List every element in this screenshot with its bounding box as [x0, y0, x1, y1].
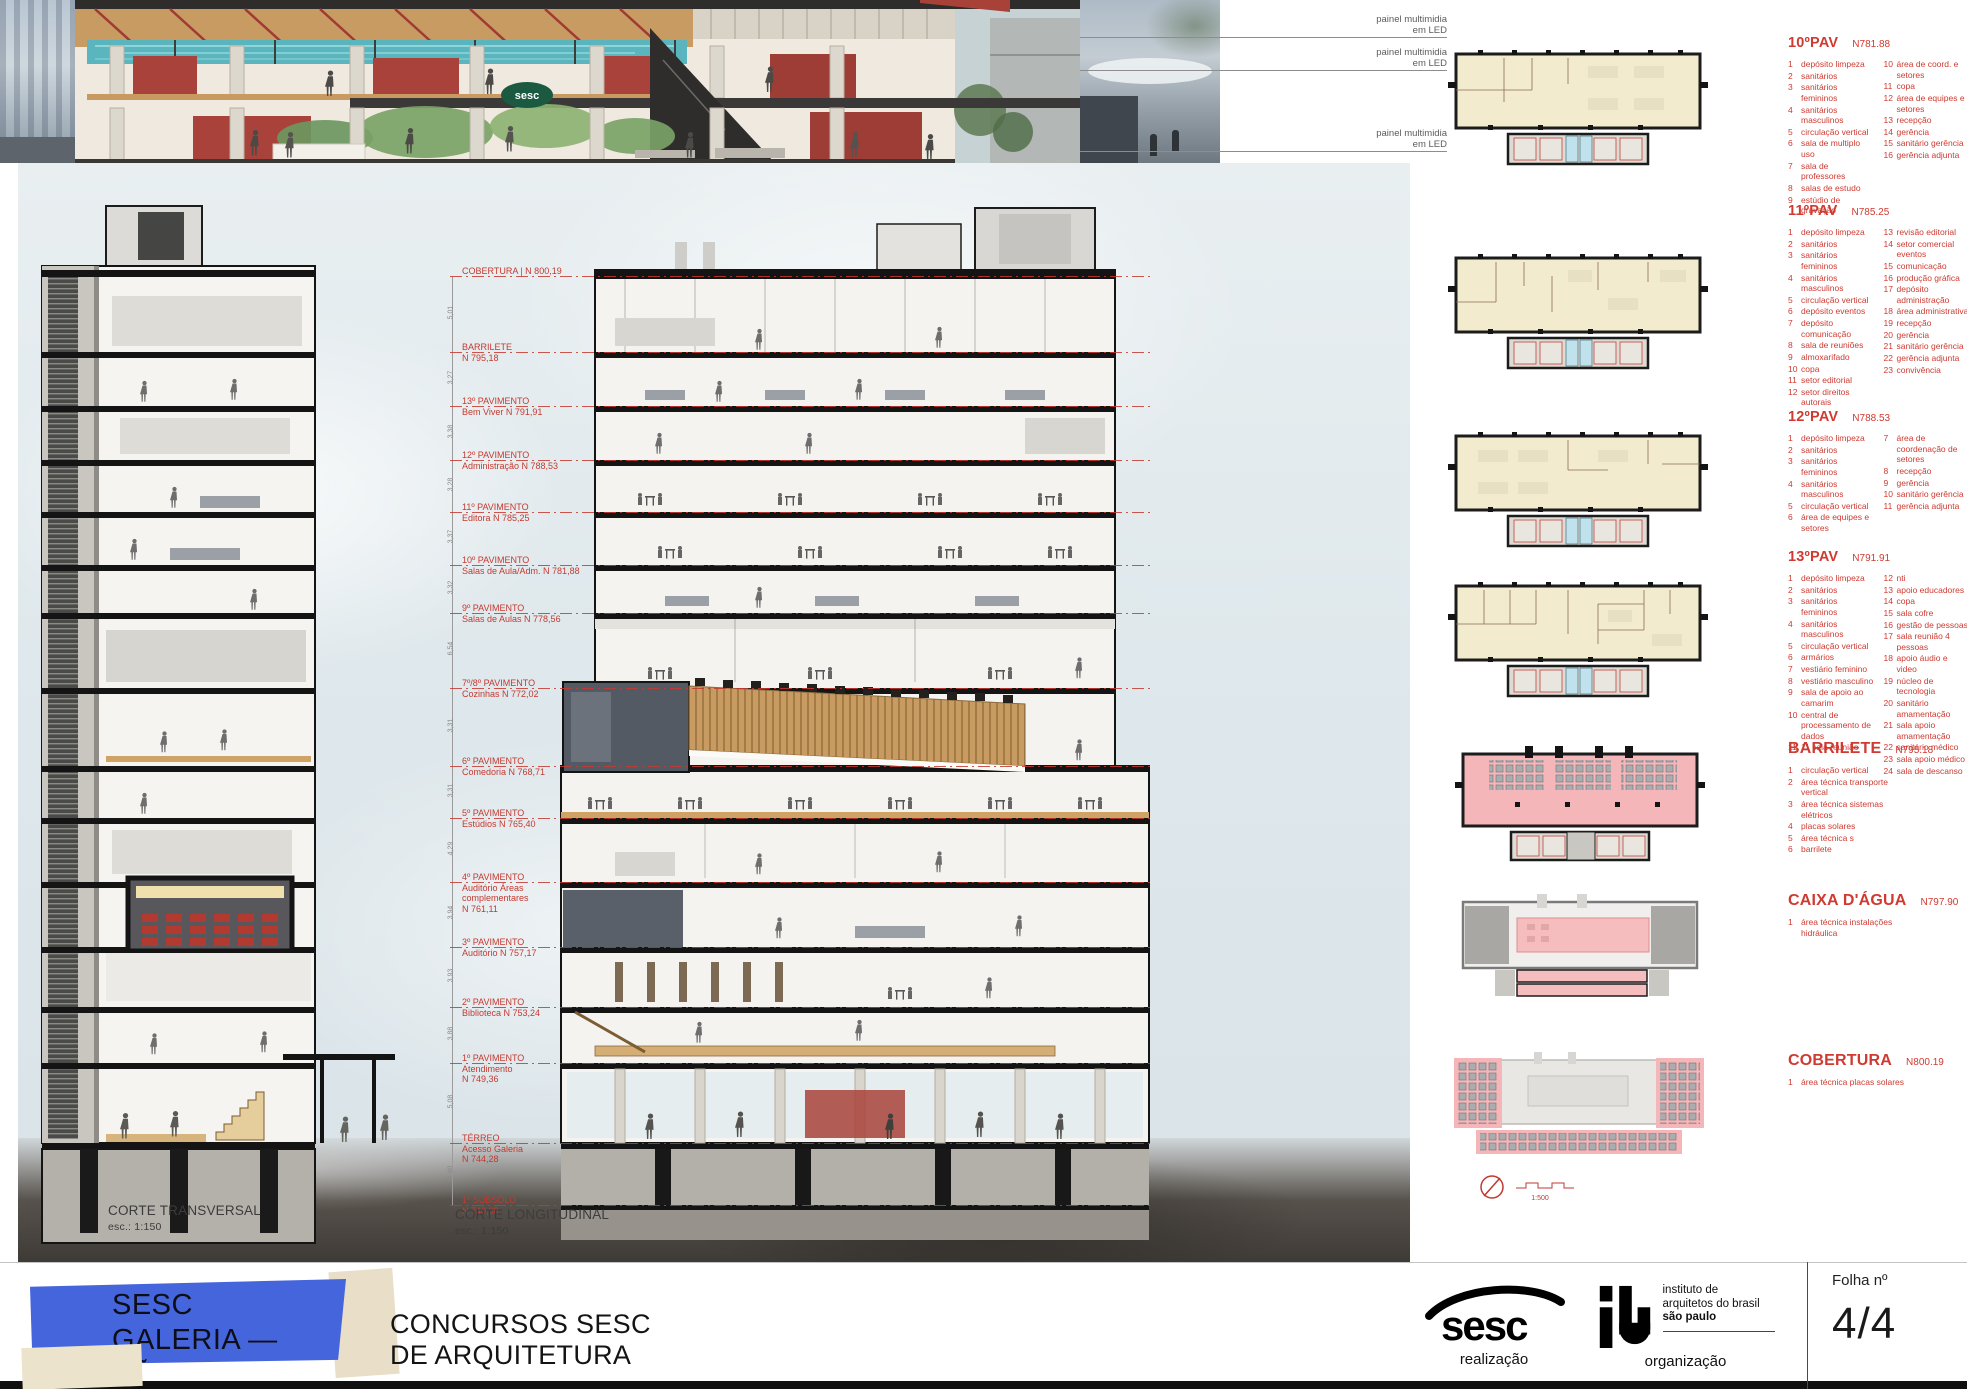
dimension-value: 4,29 — [448, 832, 455, 866]
legend-column: 10área de coord. e setores11copa12área d… — [1884, 59, 1967, 162]
legend-item: 4sanitários masculinos — [1788, 273, 1875, 294]
dimension-value: 3,32 — [448, 571, 455, 605]
bottom-bar — [0, 1381, 1967, 1389]
scale-value: 1:500 — [1531, 1195, 1549, 1202]
floor-plan-caixa-dagua — [1455, 894, 1705, 998]
legend-item: 6armários — [1788, 652, 1875, 663]
floor-plan-13pav — [1448, 574, 1708, 704]
legend-item: 8recepção — [1884, 466, 1967, 477]
legend-item: 11copa — [1884, 81, 1967, 92]
legend-item: 4placas solares — [1788, 821, 1908, 832]
legend-item: 12área de equipes e setores — [1884, 93, 1967, 114]
legend-item: 10central de processamento de dados — [1788, 710, 1875, 742]
doorway-shape — [1080, 96, 1138, 163]
legend-item: 4sanitários masculinos — [1788, 105, 1875, 126]
legend-title: 11ºPAV — [1788, 203, 1838, 219]
level-label: 13º PAVIMENTOBem Viver N 791,91 — [462, 396, 582, 417]
legend-item: 14copa — [1884, 596, 1967, 607]
dimension-value: 3,38 — [448, 415, 455, 449]
led-panel-label: painel multimidia em LED — [1325, 14, 1447, 36]
section-title-longitudinal: CORTE LONGITUDINAL esc.: 1:150 — [455, 1207, 609, 1239]
dimension-value: 3,27 — [448, 361, 455, 395]
legend-title: BARRILETE — [1788, 740, 1881, 757]
level-label: 3º PAVIMENTOAuditório N 757,17 — [462, 937, 582, 958]
legend-item: 20gerência — [1884, 330, 1967, 341]
level-label: 1º PAVIMENTOAtendimentoN 749,36 — [462, 1053, 582, 1085]
legend-item: 8vestiário masculino — [1788, 676, 1875, 687]
legend-level: N788.53 — [1852, 413, 1890, 424]
legend-11pav: 11ºPAVN785.25 1depósito limpeza2sanitári… — [1788, 202, 1967, 409]
corte-longitudinal-drawing — [555, 200, 1155, 1245]
legend-item: 8sala de reuniões — [1788, 340, 1875, 351]
legend-item: 8salas de estudo — [1788, 183, 1875, 194]
level-label: 11º PAVIMENTOEditora N 785,25 — [462, 502, 582, 523]
terreo-floor — [567, 1069, 1143, 1143]
legend-item: 13apoio educadores — [1884, 585, 1967, 596]
legend-level: N781.88 — [1852, 39, 1890, 50]
legend-item: 13recepção — [1884, 115, 1967, 126]
legend-item: 16gerência adjunta — [1884, 150, 1967, 161]
legend-cobertura: COBERTURAN800.19 1área técnica placas so… — [1788, 1052, 1967, 1089]
legend-item: 18área administrativa — [1884, 306, 1967, 317]
legend-item: 7depósito comunicação — [1788, 318, 1875, 339]
legend-column: 1depósito limpeza2sanitários3sanitários … — [1788, 433, 1875, 535]
section-title-transversal: CORTE TRANSVERSAL esc.: 1:150 — [108, 1203, 261, 1235]
legend-item: 12setor direitos autorais — [1788, 387, 1875, 408]
level-label: COBERTURA | N 800,19 — [462, 266, 582, 277]
iab-name: instituto de arquitetos do brasil são pa… — [1663, 1284, 1775, 1332]
legend-item: 12nti — [1884, 573, 1967, 584]
legend-item: 3sanitários femininos — [1788, 82, 1875, 103]
pedestrian-silhouette — [1150, 134, 1157, 156]
legend-item: 5circulação vertical — [1788, 641, 1875, 652]
legend-item: 5área técnica s — [1788, 833, 1908, 844]
level-label: 5º PAVIMENTOEstúdios N 765,40 — [462, 808, 582, 829]
sheet-number-label: Folha nº — [1832, 1272, 1967, 1289]
legend-item: 13revisão editorial — [1884, 227, 1967, 238]
dimension-value: 3,90 — [448, 1156, 455, 1190]
legend-item: 16produção gráfica — [1884, 273, 1967, 284]
legend-column: 1depósito limpeza2sanitários3sanitários … — [1788, 573, 1875, 754]
legend-item: 2sanitários — [1788, 585, 1875, 596]
sesc-logo-block: sesc realização — [1415, 1282, 1573, 1368]
legend-item: 1área técnica instalações hidráulica — [1788, 917, 1908, 938]
level-label: BARRILETEN 795,18 — [462, 342, 582, 363]
legend-column: 7área de coordenação de setores8recepção… — [1884, 433, 1967, 512]
legend-item: 15comunicação — [1884, 261, 1967, 272]
legend-level: N800.19 — [1906, 1057, 1944, 1068]
legend-column: 1depósito limpeza2sanitários3sanitários … — [1788, 59, 1875, 217]
legend-level: N797.90 — [1921, 897, 1959, 908]
level-label: 2º PAVIMENTOBiblioteca N 753,24 — [462, 997, 582, 1018]
level-label: TÉRREOAcesso GaleriaN 744,28 — [462, 1133, 582, 1165]
dimension-value: 3,88 — [448, 1017, 455, 1051]
legend-item: 19recepção — [1884, 318, 1967, 329]
legend-item: 15sanitário gerência — [1884, 138, 1967, 149]
north-arrow-icon — [1481, 1176, 1503, 1198]
sheet-number-box: Folha nº 4/4 — [1807, 1262, 1967, 1389]
level-label: 7º/8º PAVIMENTOCozinhas N 772,02 — [462, 678, 582, 699]
iab-role-label: organização — [1645, 1353, 1727, 1370]
north-arrow-and-scale: 1:500 — [1478, 1172, 1598, 1206]
basement — [561, 1149, 1149, 1240]
leader-line — [1080, 37, 1447, 38]
legend-column: 1depósito limpeza2sanitários3sanitários … — [1788, 227, 1875, 409]
legend-barrilete: BARRILETEN795.18 1circulação vertical2ár… — [1788, 740, 1967, 856]
legend-item: 1área técnica placas solares — [1788, 1077, 1908, 1088]
legend-level: N791.91 — [1852, 553, 1890, 564]
legend-item: 15sala cofre — [1884, 608, 1967, 619]
legend-item: 14gerência — [1884, 127, 1967, 138]
legend-item: 2sanitários — [1788, 71, 1875, 82]
sesc-logo-icon: sesc — [1419, 1282, 1569, 1346]
legend-item: 10área de coord. e setores — [1884, 59, 1967, 80]
competition-title: CONCURSOS SESC DE ARQUITETURA — [390, 1309, 651, 1371]
legend-caixa-dagua: CAIXA D'ÁGUAN797.90 1área técnica instal… — [1788, 892, 1967, 939]
level-label: 10º PAVIMENTOSalas de Aula/Adm. N 781,88 — [462, 555, 582, 576]
legend-title: CAIXA D'ÁGUA — [1788, 892, 1907, 909]
legend-level: N795.18 — [1895, 745, 1933, 756]
legend-item: 3sanitários femininos — [1788, 456, 1875, 477]
legend-item: 4sanitários masculinos — [1788, 619, 1875, 640]
legend-column: 1circulação vertical2área técnica transp… — [1788, 765, 1908, 856]
level-label: 6º PAVIMENTOComedoria N 768,71 — [462, 756, 582, 777]
street-photo-left — [0, 0, 75, 163]
legend-item: 7área de coordenação de setores — [1884, 433, 1967, 465]
level-label: 12º PAVIMENTOAdministração N 788,53 — [462, 450, 582, 471]
leader-line — [1080, 70, 1447, 71]
dimension-value: 3,93 — [448, 959, 455, 993]
legend-item: 6barrilete — [1788, 844, 1908, 855]
street-photo-right — [1080, 0, 1220, 163]
leader-line — [1080, 151, 1447, 152]
legend-item: 19núcleo de tecnologia — [1884, 676, 1967, 697]
legend-item: 6depósito eventos — [1788, 306, 1875, 317]
render-exterior-right — [954, 0, 1080, 163]
legend-column: 1área técnica placas solares — [1788, 1077, 1908, 1089]
legend-item: 7vestiário feminino — [1788, 664, 1875, 675]
legend-item: 22gerência adjunta — [1884, 353, 1967, 364]
legend-title: COBERTURA — [1788, 1052, 1892, 1069]
legend-item: 1depósito limpeza — [1788, 227, 1875, 238]
dimension-value: 5,08 — [448, 1085, 455, 1119]
legend-level: N785.25 — [1852, 207, 1890, 218]
floor-plan-barrilete — [1455, 744, 1705, 864]
legend-item: 1depósito limpeza — [1788, 59, 1875, 70]
iab-logo-block: instituto de arquitetos do brasil são pa… — [1578, 1284, 1793, 1370]
legend-item: 21sanitário gerência — [1884, 341, 1967, 352]
legend-item: 16gestão de pessoas — [1884, 620, 1967, 631]
led-panel-label: painel multimidia em LED — [1325, 128, 1447, 150]
floor-plan-11pav — [1448, 246, 1708, 376]
legend-item: 10sanitário gerência — [1884, 489, 1967, 500]
sesc-role-label: realização — [1460, 1351, 1528, 1368]
pedestrian-silhouette — [1172, 130, 1179, 152]
legend-item: 3sanitários femininos — [1788, 250, 1875, 271]
rooftop-volumes — [675, 208, 1095, 270]
legend-item: 1depósito limpeza — [1788, 573, 1875, 584]
floor-plan-10pav — [1448, 42, 1708, 172]
legend-column: 1área técnica instalações hidráulica — [1788, 917, 1908, 939]
dimension-value: 3,94 — [448, 896, 455, 930]
dimension-value: 5,01 — [448, 296, 455, 330]
svg-text:sesc: sesc — [515, 90, 539, 102]
legend-item: 18apoio áudio e video — [1884, 653, 1967, 674]
legend-item: 9sala de apoio ao camarim — [1788, 687, 1875, 708]
led-panel-label: painel multimidia em LED — [1325, 47, 1447, 69]
legend-item: 1depósito limpeza — [1788, 433, 1875, 444]
legend-item: 9almoxarifado — [1788, 352, 1875, 363]
corte-terreo-render: sesc — [75, 0, 1080, 163]
paper-scrap — [21, 1344, 142, 1389]
legend-item: 11setor editorial — [1788, 375, 1875, 386]
scale-bar — [1516, 1183, 1574, 1188]
legend-item: 2área técnica transporte vertical — [1788, 777, 1908, 798]
legend-title: 10ºPAV — [1788, 35, 1838, 51]
legend-title: 12ºPAV — [1788, 409, 1838, 425]
svg-text:sesc: sesc — [1441, 1302, 1528, 1346]
legend-item: 6sala de multiplo uso — [1788, 138, 1875, 159]
awning-shape — [1088, 58, 1212, 84]
presentation-board: sesc painel multimidia em LED painel mul… — [0, 0, 1967, 1389]
legend-item: 10copa — [1788, 364, 1875, 375]
legend-title: 13ºPAV — [1788, 549, 1838, 565]
level-label: 4º PAVIMENTOAuditório Áreascomplementare… — [462, 872, 582, 914]
legend-item: 20sanitário amamentação — [1884, 698, 1967, 719]
legend-10pav: 10ºPAVN781.88 1depósito limpeza2sanitári… — [1788, 34, 1967, 217]
legend-item: 2sanitários — [1788, 239, 1875, 250]
corte-transversal-drawing — [20, 200, 440, 1245]
floor-plan-12pav — [1448, 424, 1708, 554]
legend-item: 14setor comercial eventos — [1884, 239, 1967, 260]
level-label: 9º PAVIMENTOSalas de Aulas N 778,56 — [462, 603, 582, 624]
legend-item: 9gerência — [1884, 478, 1967, 489]
legend-item: 3área técnica sistemas elétricos — [1788, 799, 1908, 820]
legend-column: 13revisão editorial14setor comercial eve… — [1884, 227, 1967, 376]
legend-item: 17sala reunião 4 pessoas — [1884, 631, 1967, 652]
legend-item: 5circulação vertical — [1788, 295, 1875, 306]
iab-rule — [1663, 1331, 1775, 1332]
dimension-value: 3,28 — [448, 468, 455, 502]
legend-item: 11gerência adjunta — [1884, 501, 1967, 512]
dimension-value: 3,31 — [448, 774, 455, 808]
legend-item: 3sanitários femininos — [1788, 596, 1875, 617]
sheet-number-value: 4/4 — [1832, 1299, 1967, 1349]
legend-12pav: 12ºPAVN788.53 1depósito limpeza2sanitári… — [1788, 408, 1967, 535]
legend-item: 17depósito administração — [1884, 284, 1967, 305]
legend-item: 2sanitários — [1788, 445, 1875, 456]
legend-item: 21sala apoio amamentação — [1884, 720, 1967, 741]
iab-logo-icon — [1597, 1284, 1653, 1348]
legend-item: 23convivência — [1884, 365, 1967, 376]
dimension-value: 3,31 — [448, 709, 455, 743]
legend-item: 6área de equipes e setores — [1788, 512, 1875, 533]
auditorium — [128, 878, 292, 951]
legend-item: 1circulação vertical — [1788, 765, 1908, 776]
legend-item: 5circulação vertical — [1788, 127, 1875, 138]
legend-item: 4sanitários masculinos — [1788, 479, 1875, 500]
floor-plan-cobertura — [1448, 1052, 1710, 1156]
dimension-value: 6,54 — [448, 632, 455, 666]
legend-item: 7sala de professores — [1788, 161, 1875, 182]
dimension-value: 3,37 — [448, 520, 455, 554]
sesc-sign: sesc — [501, 82, 553, 108]
legend-item: 5circulação vertical — [1788, 501, 1875, 512]
